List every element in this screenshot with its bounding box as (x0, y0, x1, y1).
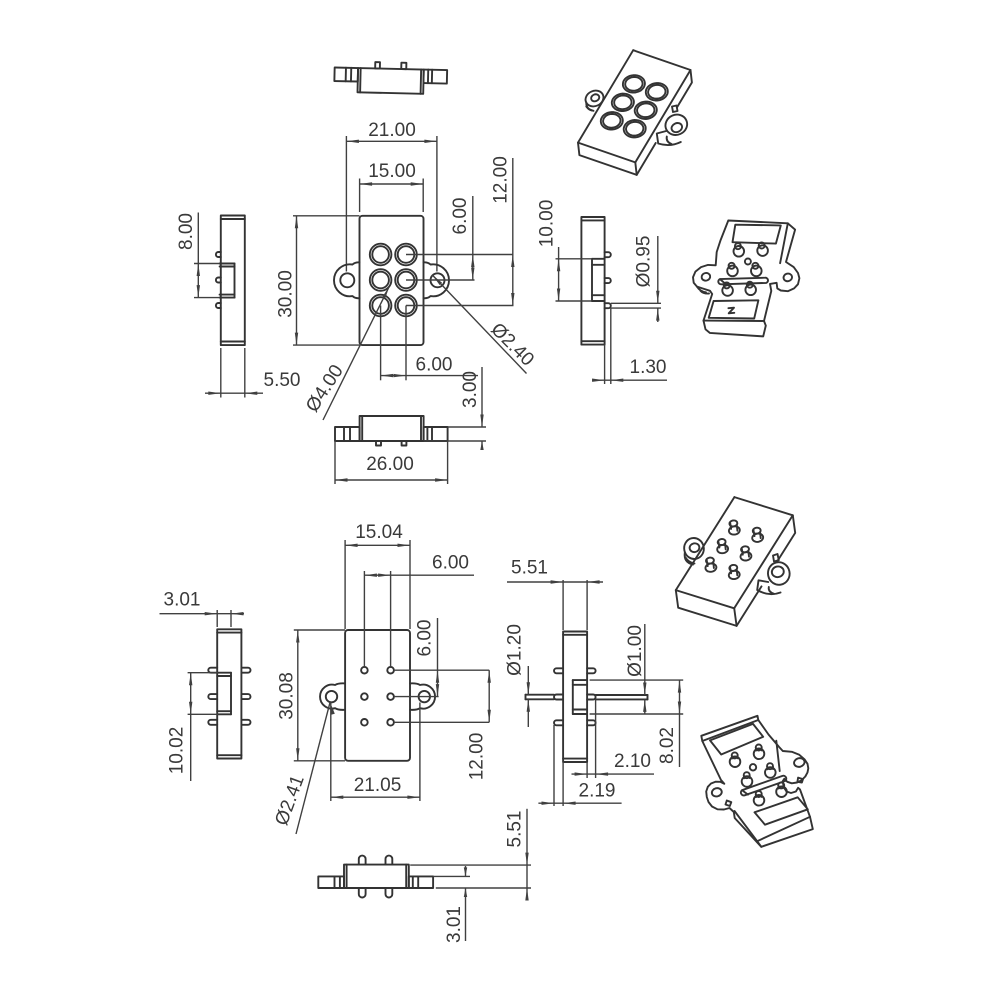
svg-text:6.00: 6.00 (415, 620, 436, 657)
svg-text:30.00: 30.00 (276, 270, 297, 318)
svg-text:15.04: 15.04 (355, 522, 403, 543)
svg-text:3.01: 3.01 (444, 906, 465, 943)
svg-text:6.00: 6.00 (416, 355, 453, 376)
svg-text:26.00: 26.00 (366, 454, 414, 475)
svg-text:12.00: 12.00 (491, 156, 512, 204)
svg-text:5.51: 5.51 (505, 811, 526, 848)
svg-text:6.00: 6.00 (432, 553, 469, 574)
svg-text:Ø4.00: Ø4.00 (302, 361, 348, 416)
svg-text:8.02: 8.02 (657, 727, 678, 764)
svg-text:Ø1.20: Ø1.20 (505, 624, 526, 676)
svg-text:1.30: 1.30 (630, 357, 667, 378)
svg-text:Ø1.00: Ø1.00 (625, 625, 646, 677)
svg-text:8.00: 8.00 (176, 213, 197, 250)
svg-text:Ø2.40: Ø2.40 (486, 319, 537, 370)
svg-text:Ø2.41: Ø2.41 (271, 772, 308, 828)
svg-text:3.00: 3.00 (460, 371, 481, 408)
svg-text:3.01: 3.01 (164, 590, 201, 611)
svg-text:10.00: 10.00 (537, 200, 558, 248)
svg-text:30.08: 30.08 (277, 672, 298, 720)
svg-text:5.51: 5.51 (511, 558, 548, 579)
svg-text:6.00: 6.00 (450, 198, 471, 235)
svg-text:2.19: 2.19 (579, 781, 616, 802)
svg-text:21.00: 21.00 (368, 120, 416, 141)
svg-text:12.00: 12.00 (467, 733, 488, 781)
svg-text:5.50: 5.50 (264, 370, 301, 391)
svg-text:10.02: 10.02 (167, 727, 188, 775)
svg-text:21.05: 21.05 (354, 775, 402, 796)
svg-text:15.00: 15.00 (368, 161, 416, 182)
svg-text:Ø0.95: Ø0.95 (634, 236, 655, 288)
svg-text:2.10: 2.10 (614, 751, 651, 772)
